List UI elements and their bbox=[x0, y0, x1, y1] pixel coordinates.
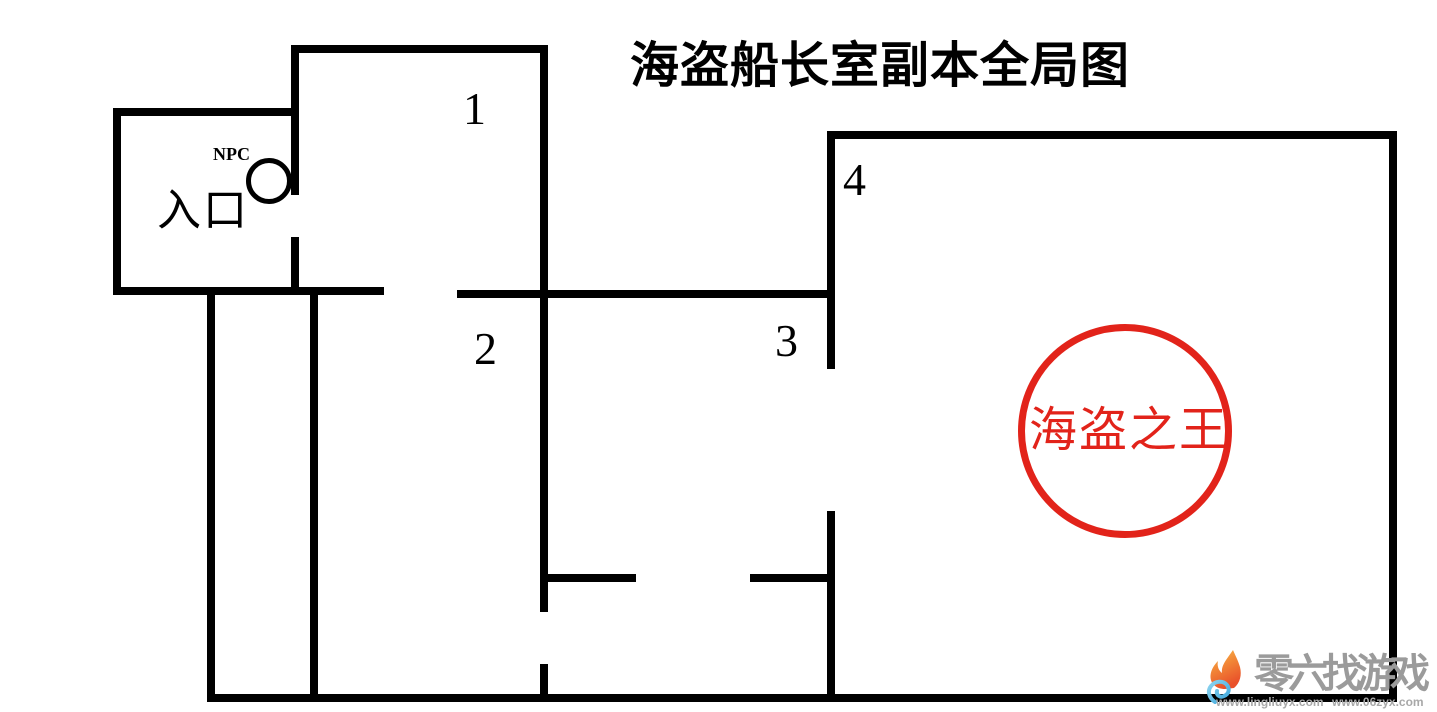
wall-room4-left-upper bbox=[827, 131, 835, 369]
watermark-url-left: www.lingliuyx.com bbox=[1216, 696, 1324, 708]
wall-left-inner bbox=[310, 295, 318, 702]
boss-label: 海盗之王 bbox=[1029, 407, 1229, 455]
room-1-label: 1 bbox=[463, 86, 486, 132]
wall-room4-left-lower bbox=[827, 511, 835, 702]
wall-entrance-left bbox=[113, 108, 121, 295]
wall-room4-top bbox=[827, 131, 1397, 139]
wall-entrance-top bbox=[113, 108, 298, 116]
room-4-label: 4 bbox=[843, 157, 866, 203]
watermark-url-right: www.06zyx.com bbox=[1332, 696, 1424, 708]
npc-label: NPC bbox=[213, 145, 250, 163]
wall-left-outer bbox=[207, 295, 215, 702]
wall-room1-top bbox=[291, 45, 548, 53]
wall-room4-right bbox=[1389, 131, 1397, 697]
wall-entrance-right-upper bbox=[291, 45, 299, 195]
npc-marker-circle bbox=[246, 158, 292, 204]
watermark-site-name: 零六找游戏 bbox=[1254, 654, 1424, 694]
wall-room1-right-upper bbox=[540, 45, 548, 612]
dungeon-map: 海盗船长室副本全局图 入口 NPC 1 2 3 4 海盗之王 bbox=[0, 0, 1437, 712]
map-title: 海盗船长室副本全局图 bbox=[630, 41, 1130, 90]
wall-corridor-top bbox=[457, 290, 833, 298]
watermark: 零六找游戏 www.lingliuyx.com www.06zyx.com bbox=[1196, 646, 1437, 712]
wall-entrance-bottom bbox=[113, 287, 384, 295]
wall-mid-right bbox=[750, 574, 833, 582]
room-2-label: 2 bbox=[474, 326, 497, 372]
wall-entrance-right-lower bbox=[291, 237, 299, 295]
room-3-label: 3 bbox=[775, 318, 798, 364]
entrance-label: 入口 bbox=[157, 189, 249, 233]
wall-mid-left bbox=[543, 574, 636, 582]
